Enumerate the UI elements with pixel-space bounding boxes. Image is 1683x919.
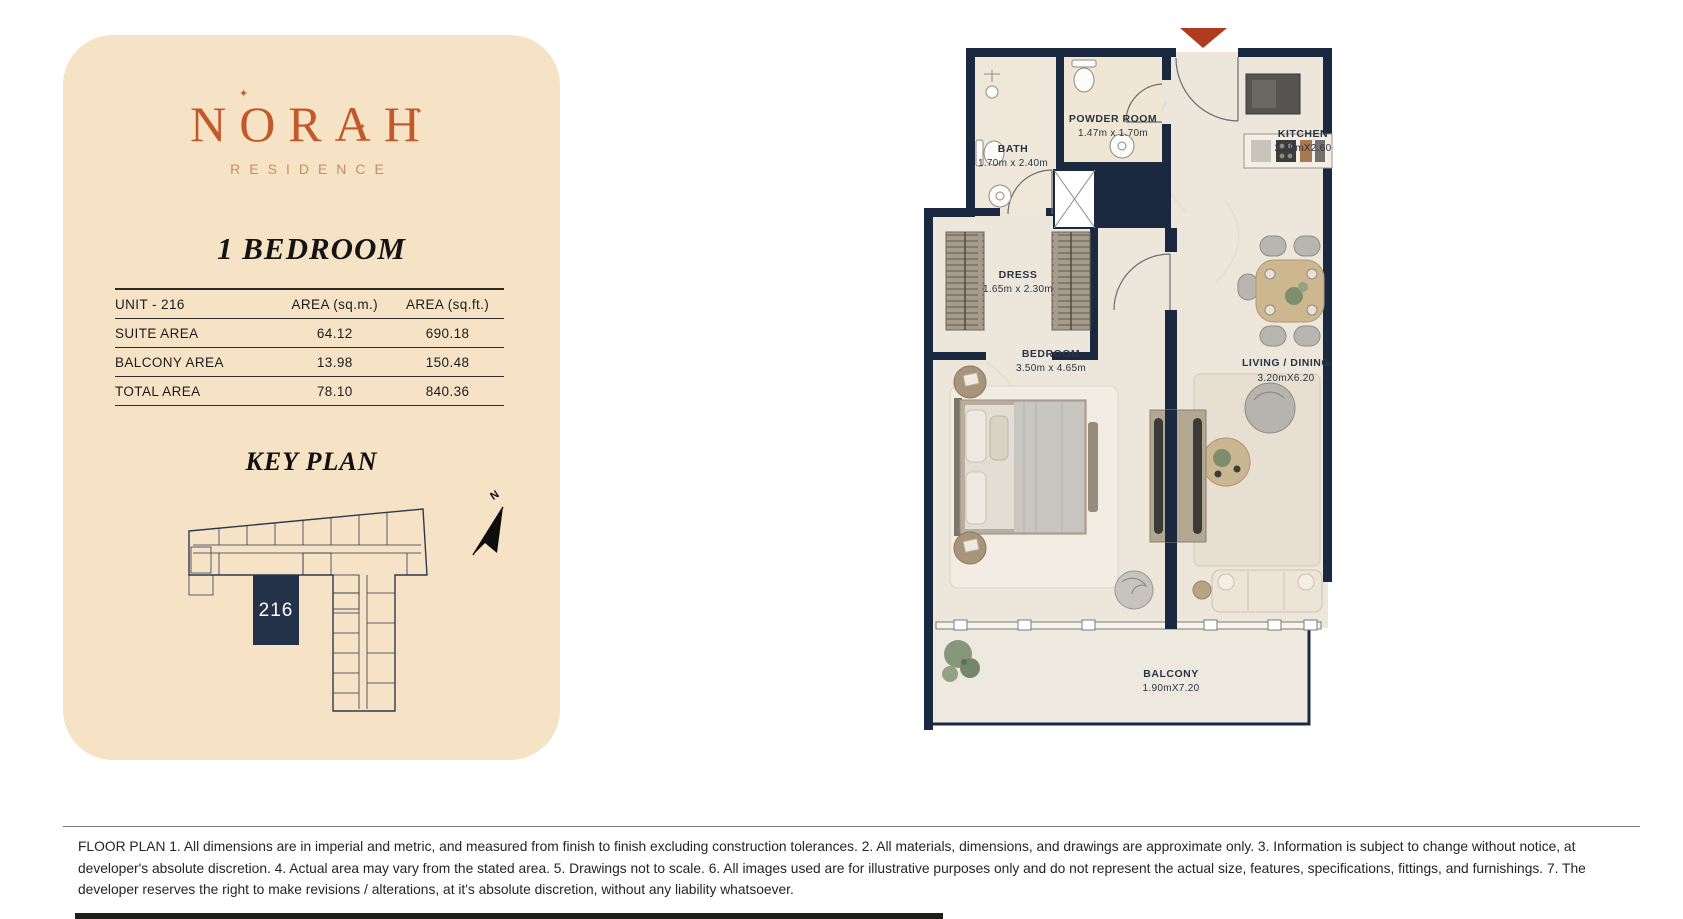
sparkle-icon: ✦ [415, 107, 423, 116]
room-dims-bedroom: 3.50m x 4.65m [1016, 363, 1086, 374]
room-dims-living: 3.20mX6.20 [1258, 373, 1315, 384]
room-label-bedroom: BEDROOM [1022, 348, 1080, 360]
table-row: TOTAL AREA 78.10 840.36 [115, 377, 504, 406]
row-sqft: 150.48 [391, 355, 504, 370]
row-sqft: 690.18 [391, 326, 504, 341]
room-dims-bath: 1.70m x 2.40m [978, 158, 1048, 169]
key-plan-title: KEY PLAN [63, 447, 560, 477]
brand-tagline: RESIDENCE [63, 161, 560, 177]
room-label-bath: BATH [998, 143, 1028, 155]
room-label-dress: DRESS [999, 269, 1038, 281]
room-label-kitchen: KITCHEN [1278, 128, 1328, 140]
row-sqft: 840.36 [391, 384, 504, 399]
room-dims-kitchen: 2.30mX2.60 [1275, 143, 1332, 154]
room-dims-powder: 1.47m x 1.70m [1078, 128, 1148, 139]
svg-text:N: N [488, 488, 501, 502]
room-label-balcony: BALCONY [1143, 668, 1198, 680]
balcony-floor [932, 628, 1310, 724]
living-furniture [1193, 374, 1322, 612]
area-table: UNIT - 216 AREA (sq.m.) AREA (sq.ft.) SU… [115, 288, 504, 406]
building-outline [189, 509, 427, 711]
table-row: SUITE AREA 64.12 690.18 [115, 319, 504, 348]
sparkle-icon: ✦ [239, 89, 248, 100]
row-sqm: 13.98 [278, 355, 391, 370]
col-sqm: AREA (sq.m.) [278, 297, 391, 312]
building-partitions [189, 513, 421, 709]
room-label-powder: POWDER ROOM [1069, 113, 1157, 125]
brand-logo: NORAH [63, 95, 560, 153]
media-unit [1150, 410, 1206, 542]
sparkle-icon: ✦ [359, 123, 366, 131]
key-plan-drawing: 216 [183, 483, 435, 715]
room-dims-dress: 1.65m x 2.30m [983, 284, 1053, 295]
entry-marker-icon [1180, 28, 1227, 48]
floor-plan: BATH 1.70m x 2.40m POWDER ROOM 1.47m x 1… [866, 22, 1336, 757]
table-row: BALCONY AREA 13.98 150.48 [115, 348, 504, 377]
info-panel: NORAH ✦ ✦ ✦ RESIDENCE 1 BEDROOM UNIT - 2… [63, 35, 560, 760]
page-bottom-bar [75, 913, 943, 919]
north-arrow-icon: N [461, 485, 517, 563]
row-label: TOTAL AREA [115, 384, 278, 399]
col-unit: UNIT - 216 [115, 297, 278, 312]
col-sqft: AREA (sq.ft.) [391, 297, 504, 312]
row-sqm: 64.12 [278, 326, 391, 341]
shaft [1054, 170, 1095, 228]
unit-type-title: 1 BEDROOM [63, 231, 560, 267]
row-sqm: 78.10 [278, 384, 391, 399]
room-dims-balcony: 1.90mX7.20 [1143, 683, 1200, 694]
bath-floor [974, 57, 1056, 212]
area-table-header: UNIT - 216 AREA (sq.m.) AREA (sq.ft.) [115, 290, 504, 319]
row-label: BALCONY AREA [115, 355, 278, 370]
room-label-living: LIVING / DINING [1242, 357, 1330, 369]
disclaimer-text: FLOOR PLAN 1. All dimensions are in impe… [78, 836, 1642, 901]
glass-doors [936, 620, 1321, 630]
row-label: SUITE AREA [115, 326, 278, 341]
unit-216-number: 216 [259, 600, 294, 621]
footer-divider [63, 826, 1640, 827]
